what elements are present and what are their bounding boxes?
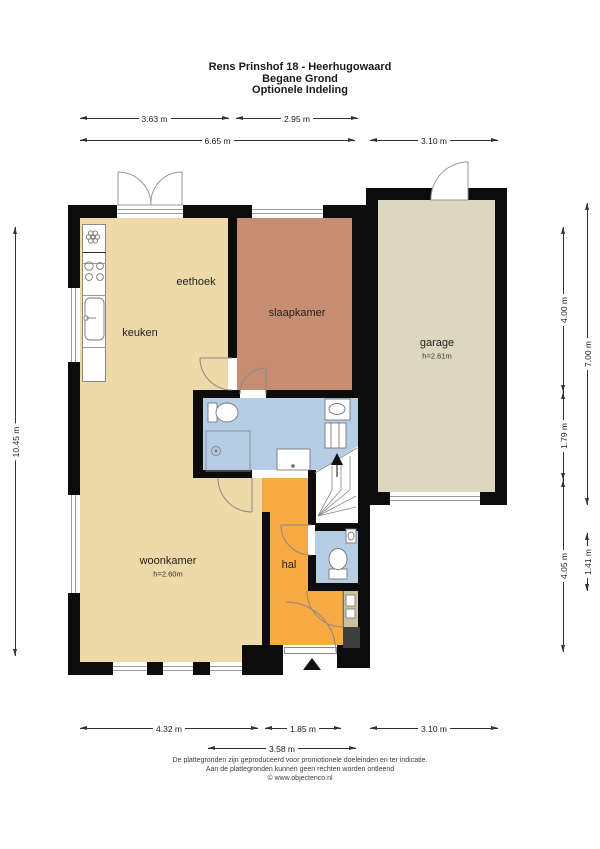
wall-keuken-slaapkamer: [228, 218, 237, 358]
dim-bottom-358: 3.58 m: [208, 748, 356, 749]
wall-trap-wc: [315, 523, 358, 531]
dim-label: 3.10 m: [418, 724, 450, 734]
window-woonkamer-bottom-1: [113, 662, 147, 675]
entrance-arrow-icon: [303, 658, 321, 670]
wall-woonkamer-hal: [262, 512, 270, 662]
room-label-woonkamer: woonkamer: [140, 555, 197, 567]
room-label-slaapkamer: slaapkamer: [269, 307, 326, 319]
floor-wc: [315, 530, 358, 583]
wall-badkamer-left: [193, 390, 203, 478]
page-subtitle-layout: Optionele Indeling: [0, 85, 600, 97]
dim-top-310: 3.10 m: [370, 140, 498, 141]
dim-right-400: 4.00 m: [563, 227, 564, 392]
dim-label: 1.79 m: [559, 420, 569, 452]
dim-label: 1.85 m: [287, 724, 319, 734]
page-title-block: Rens Prinshof 18 - Heerhugowaard Begane …: [0, 62, 600, 97]
wall-right-upper: [352, 205, 366, 395]
disclaimer-line2: Aan de plattegronden kunnen geen rechten…: [0, 765, 600, 774]
dim-right-700: 7.00 m: [587, 203, 588, 505]
dim-left-1045: 10.45 m: [15, 227, 16, 656]
kitchen-counter: [82, 224, 106, 382]
floor-hal-lower: [308, 591, 343, 645]
dim-bottom-310: 3.10 m: [370, 728, 498, 729]
dim-label: 4.00 m: [559, 294, 569, 326]
dim-label: 7.00 m: [583, 338, 593, 370]
wall-garage-right: [495, 188, 507, 505]
dim-label: 6.65 m: [202, 136, 234, 146]
room-label-eethoek: eethoek: [176, 276, 215, 288]
wall-left: [68, 205, 80, 675]
dim-label: 10.45 m: [11, 423, 21, 460]
dim-top-295: 2.95 m: [236, 118, 358, 119]
garage-door-opening-bottom: [390, 492, 480, 505]
page-title: Rens Prinshof 18 - Heerhugowaard: [0, 62, 600, 74]
dim-right-141: 1.41 m: [587, 533, 588, 591]
window-keuken-left: [68, 288, 80, 362]
room-label-garage: garage: [420, 337, 454, 349]
wall-wc-bottom: [315, 583, 358, 591]
copyright-line: © www.objectenco.nl: [0, 774, 600, 783]
room-height-garage: h=2.61m: [422, 352, 451, 361]
wall-badkamer-top-right: [266, 390, 358, 398]
window-woonkamer-left: [68, 495, 80, 593]
window-slaapkamer: [252, 205, 323, 218]
room-label-hal: hal: [282, 559, 297, 571]
dim-right-179: 1.79 m: [563, 392, 564, 480]
floorplan-page: Rens Prinshof 18 - Heerhugowaard Begane …: [0, 0, 600, 849]
wall-badkamer-bottom: [193, 470, 252, 478]
front-door-leaf: [284, 647, 337, 654]
wall-hal-trap-upper: [308, 470, 316, 525]
floor-slaapkamer: [237, 218, 352, 390]
divider-meterkast: [343, 591, 344, 627]
dim-label: 1.41 m: [583, 546, 593, 578]
dim-label: 4.05 m: [559, 550, 569, 582]
floor-badkamer: [203, 398, 358, 470]
disclaimer-line1: De plattegronden zijn geproduceerd voor …: [0, 756, 600, 765]
dim-label: 3.10 m: [418, 136, 450, 146]
dim-label: 3.63 m: [139, 114, 171, 124]
dim-bottom-432: 4.32 m: [80, 728, 258, 729]
wall-garage-left: [366, 188, 378, 505]
dim-label: 3.58 m: [266, 744, 298, 754]
window-woonkamer-bottom-2: [163, 662, 193, 675]
french-door-opening: [117, 205, 183, 218]
room-height-woonkamer: h=2.60m: [153, 570, 182, 579]
dim-right-405: 4.05 m: [563, 480, 564, 652]
french-doors-swing: [118, 172, 182, 205]
dim-top-363: 3.63 m: [80, 118, 229, 119]
disclaimer-block: De plattegronden zijn geproduceerd voor …: [0, 756, 600, 783]
dim-top-665: 6.65 m: [80, 140, 355, 141]
wall-badkamer-top-left: [203, 390, 240, 398]
window-woonkamer-bottom-3: [210, 662, 242, 675]
wall-garage-bottom-right: [480, 492, 507, 505]
floor-meterkast: [343, 591, 358, 627]
wall-garage-bottom-left: [366, 492, 390, 505]
dim-label: 2.95 m: [281, 114, 313, 124]
dim-label: 4.32 m: [153, 724, 185, 734]
meter-dark-box: [343, 627, 360, 648]
garage-door-opening-top: [432, 188, 468, 200]
dim-bottom-185: 1.85 m: [265, 728, 341, 729]
room-label-keuken: keuken: [122, 327, 157, 339]
